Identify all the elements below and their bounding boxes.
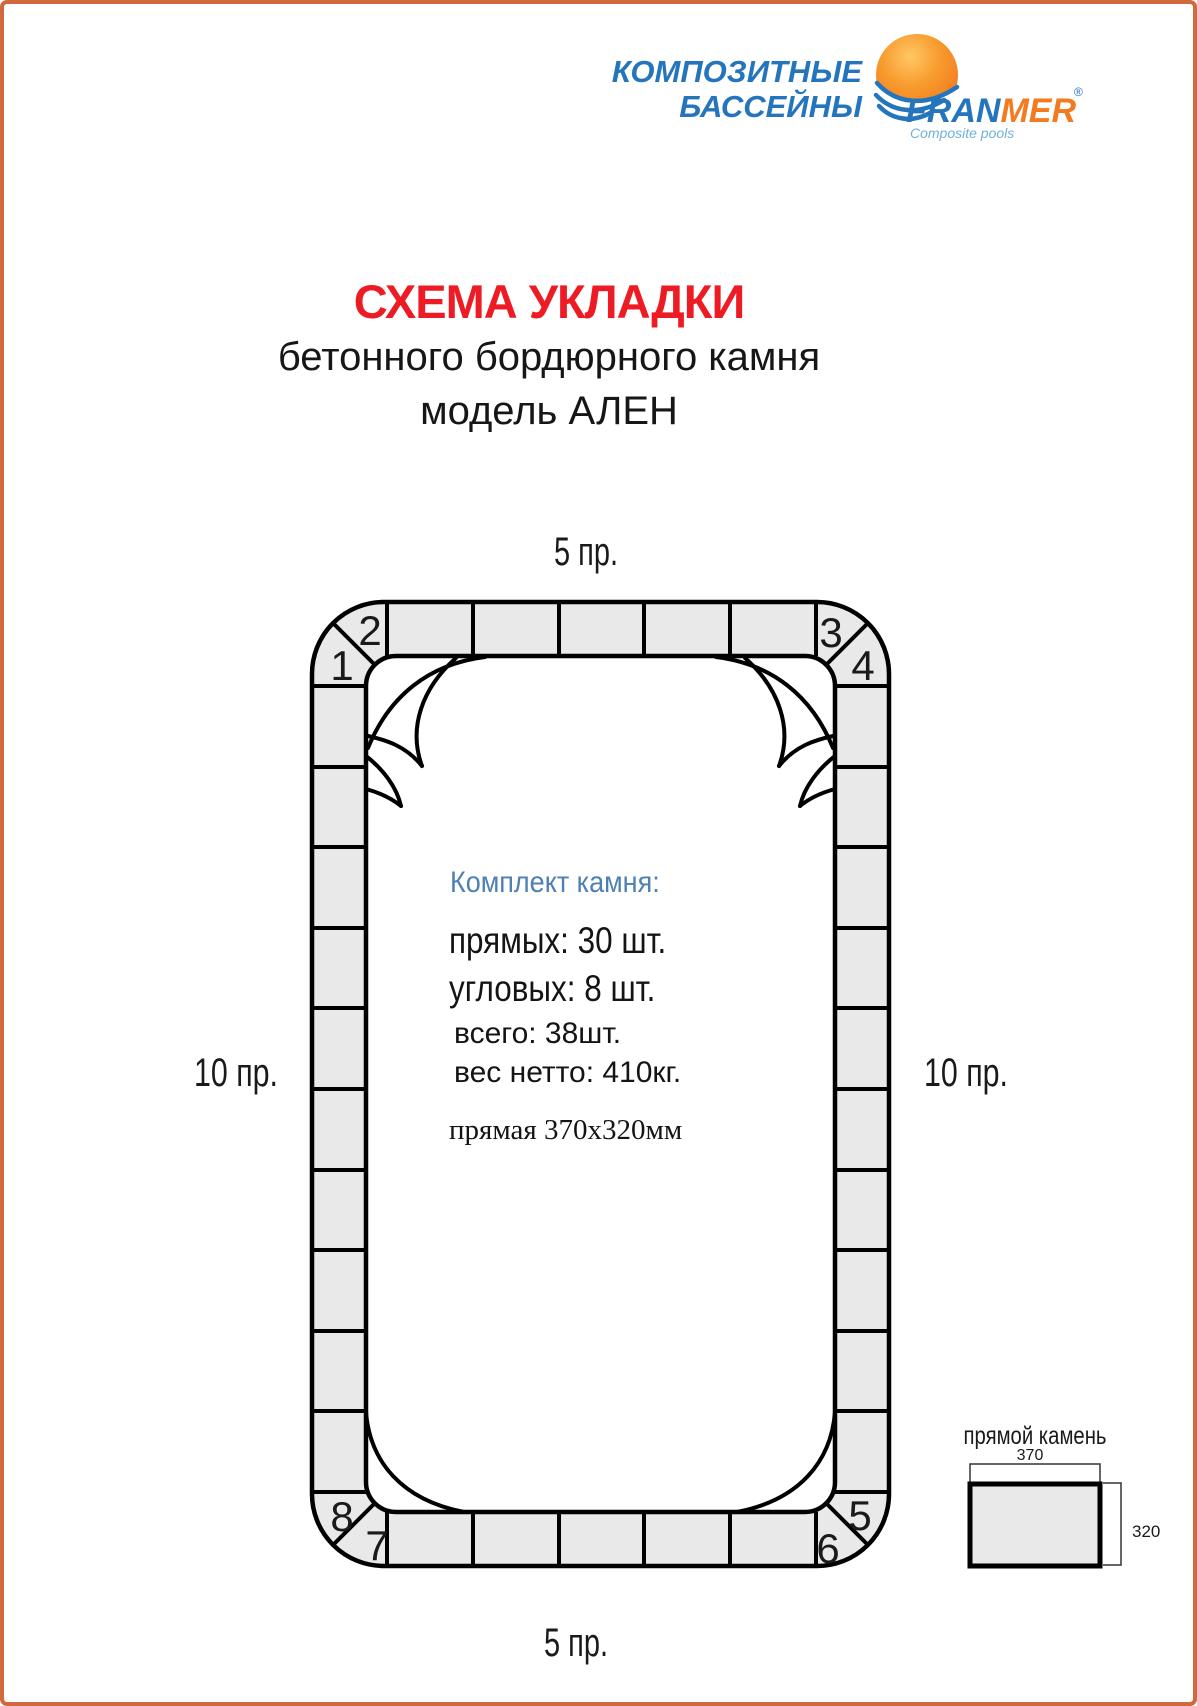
corner-number-2: 2 [358, 607, 381, 654]
corner-number-1: 1 [330, 642, 353, 689]
layout-scheme-diagram: 5 пр. 5 пр. 10 пр. 10 пр. 1 2 3 4 5 6 7 … [4, 4, 1197, 1706]
kit-total-count: всего: 38шт. [454, 1017, 621, 1051]
kit-net-weight: вес нетто: 410кг. [454, 1056, 681, 1090]
kit-corner-count: угловых: 8 шт. [449, 968, 655, 1010]
width-dimension-bracket [970, 1464, 1100, 1484]
corner-number-8: 8 [330, 1493, 353, 1540]
kit-straight-count: прямых: 30 шт. [449, 920, 666, 962]
corner-number-7: 7 [365, 1522, 388, 1569]
kit-stone-size: прямая 370х320мм [449, 1114, 682, 1147]
label-right-count: 10 пр. [924, 1051, 1008, 1095]
corner-number-3: 3 [819, 609, 842, 656]
page: КОМПОЗИТНЫЕ БАССЕЙНЫ FRANMER ® Composite… [0, 0, 1197, 1706]
kit-heading: Комплект камня: [450, 866, 660, 900]
label-top-count: 5 пр. [554, 530, 618, 574]
stone-detail-rect [970, 1484, 1100, 1566]
height-dimension-bracket [1103, 1483, 1121, 1565]
straight-stone-detail: прямой камень 370 320 [964, 1422, 1161, 1566]
corner-number-6: 6 [816, 1525, 839, 1572]
pool-step-curves [366, 657, 835, 806]
label-bottom-count: 5 пр. [544, 1621, 608, 1665]
corner-number-4: 4 [851, 642, 874, 689]
stone-detail-width-label: 370 [1017, 1447, 1044, 1464]
pool-bottom-corner-arcs [366, 1412, 835, 1512]
corner-number-5: 5 [848, 1492, 871, 1539]
stone-detail-title: прямой камень [964, 1422, 1107, 1450]
label-left-count: 10 пр. [194, 1051, 278, 1095]
stone-detail-height-label: 320 [1132, 1522, 1160, 1541]
